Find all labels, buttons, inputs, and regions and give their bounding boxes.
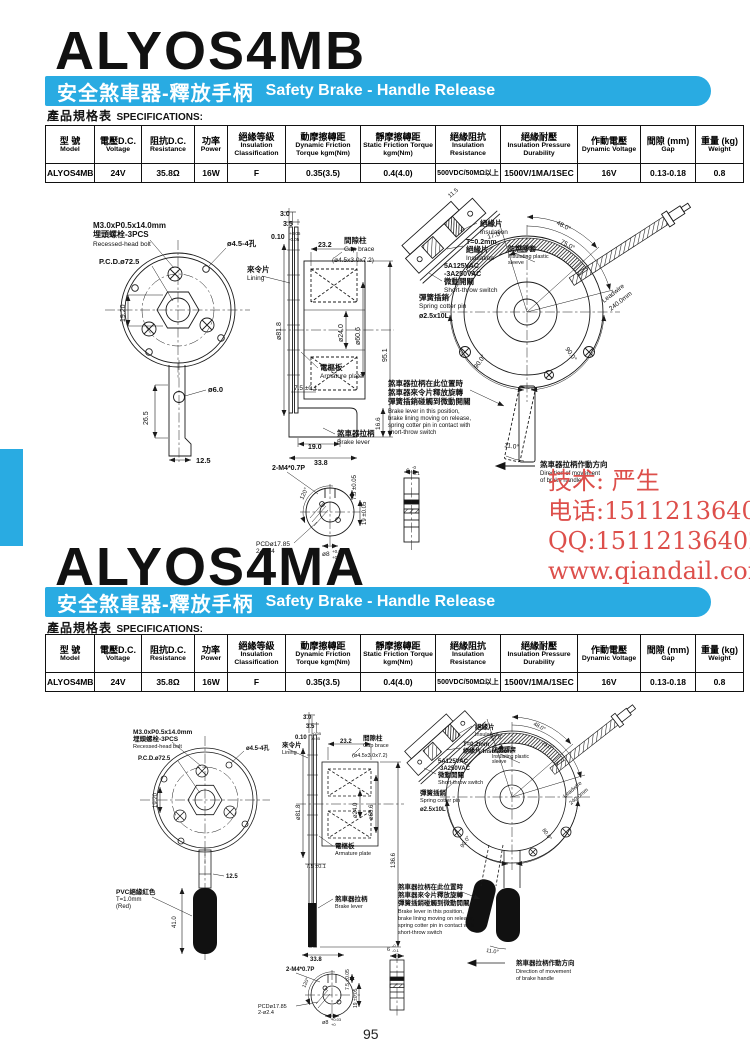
drawing-label: Armature plate <box>335 851 371 857</box>
model-title-svg-1: ALYOS4MB <box>0 0 750 75</box>
drawing-label: 136.6 <box>391 852 397 868</box>
spec-col-header: 動摩擦轉距Dynamic Friction Torque kgm(Nm) <box>286 635 361 673</box>
drawing-label: 5A125VAC <box>438 759 469 765</box>
drawing-label: -0.1 <box>392 948 400 953</box>
page-number: 95 <box>363 1026 379 1042</box>
brake-lever-outline <box>169 365 191 456</box>
drawing-label: 埋頭螺栓-3PCS <box>133 734 179 743</box>
drawing-label: 23.2 <box>318 242 332 249</box>
drawing-label: 11.5 <box>447 187 460 199</box>
drawing-label: 41.0 <box>172 916 178 928</box>
drawing-label: 煞車器拉柄在此位置時 <box>398 882 464 891</box>
drawing-label: -0.05 <box>289 237 300 242</box>
spec-value-cell: 0.13-0.18 <box>641 164 696 183</box>
watermark-line: QQ:15112136402 <box>548 526 750 556</box>
drawing-label: 來令片 <box>247 264 270 274</box>
drawing-label: ø2.5x10L <box>419 313 450 320</box>
spec-value-cell: ALYOS4MB <box>46 164 95 183</box>
spec-heading-1: 產品規格表 SPECIFICATIONS: <box>47 107 203 125</box>
drawing-label: 3.0 <box>280 211 290 218</box>
drawing-label: 防燃膠套 <box>508 244 537 253</box>
drawing-label: 33.8 <box>314 460 328 467</box>
drawing-label: 煞車器拉柄 <box>337 428 375 438</box>
shaft-detail <box>390 953 404 1016</box>
drawing-label: ø60.6 <box>369 804 375 820</box>
spec-col-header: 絕緣耐壓Insulation Pressure Durability <box>501 635 578 673</box>
flange-front-view <box>105 240 250 462</box>
spec-col-header: 阻抗D.C.Resistance <box>142 635 195 673</box>
drawing-label: 2-M4*0.7P <box>286 967 314 973</box>
drawing-label: 0.10 <box>271 234 285 241</box>
drawing-label: ø24.0 <box>338 324 345 342</box>
drawing-label: Lining <box>282 750 297 756</box>
drawing-label: -0.05 <box>311 736 321 741</box>
drawing-label: +0 <box>331 1022 336 1027</box>
spec-value-cell: 0.35(3.5) <box>286 164 361 183</box>
drawing-label: 19.0 <box>308 444 322 451</box>
section-banner-1: 安全煞車器-釋放手柄 Safety Brake - Handle Release <box>45 76 711 106</box>
side-tab-marker <box>0 449 23 546</box>
drawing-label: Direction of movement <box>516 969 571 975</box>
drawing-label: Lining <box>247 275 265 282</box>
spec-table-value-row: ALYOS4MB24V35.8Ω16WF0.35(3.5)0.4(4.0)500… <box>46 673 744 692</box>
pvc-handle-straight <box>496 888 520 942</box>
spec-value-cell: 500VDC/50MΩ以上 <box>436 673 501 692</box>
drawing-label: ø81.8 <box>296 804 302 820</box>
spec-value-cell: 1500V/1MA/1SEC <box>501 673 578 692</box>
drawing-label: Spring cotter pin <box>420 798 460 804</box>
drawing-label: 26.5 <box>143 411 150 425</box>
spec-table-header-row: 型 號Model電壓D.C.Voltage阻抗D.C.Resistance功率P… <box>46 635 744 673</box>
drawing-label: 16.6 <box>375 417 382 430</box>
drawing-label: -0.1 <box>412 471 420 476</box>
mount-lug <box>529 848 537 856</box>
drawing-label: P.C.D.ø72.5 <box>138 756 171 762</box>
drawing-label: short-throw switch <box>398 930 442 936</box>
drawing-label: 11.0° <box>486 948 499 956</box>
drawing-label: 90.0° <box>563 346 579 363</box>
drawing-label: Insulation <box>466 255 494 262</box>
drawing-label: sleeve <box>508 260 524 266</box>
spec-value-cell: ALYOS4MB <box>46 673 95 692</box>
recessed-bolt <box>224 806 236 818</box>
drawing-label: 絕緣片 <box>480 218 503 228</box>
drawing-label: 7.5 ±0.1 <box>306 864 326 870</box>
drawing-label: of brake handle <box>516 976 554 982</box>
technical-drawing-alyos4ma: M3.0xP0.5x14.0mm埋頭螺栓-3PCSRecessed-head b… <box>0 690 750 1035</box>
page-title: ALYOS4MB <box>55 21 366 75</box>
drawing-label: 3.5 <box>306 724 315 730</box>
spec-value-cell: 500VDC/50MΩ以上 <box>436 164 501 183</box>
spec-heading-zh: 產品規格表 <box>47 109 112 123</box>
drawing-label: 彈簧插銷 <box>420 788 447 797</box>
drawing-label: -0 <box>412 465 416 470</box>
recessed-bolt <box>200 318 214 332</box>
drawing-label: 絕緣片 <box>475 722 495 731</box>
drawing-label: 煞車器拉柄在此位置時 <box>388 378 463 388</box>
drawing-label: 7.5 ±0.05 <box>345 969 351 990</box>
drawing-label: +0.05 <box>289 231 301 236</box>
drawing-label: Short-throw switch <box>438 780 483 786</box>
drawing-label: 48.0° <box>555 219 573 233</box>
drawing-label: 間隙柱 <box>344 235 367 245</box>
drawing-label: 90.0° <box>472 353 488 370</box>
spec-value-cell: 0.4(4.0) <box>361 673 436 692</box>
spec-value-cell: 24V <box>95 164 142 183</box>
spec-value-cell: F <box>228 164 286 183</box>
spec-col-header: 型 號Model <box>46 635 95 673</box>
drawing-label: 33.8 <box>310 957 322 963</box>
drawing-label: 煞車器來令片釋放旋轉 <box>398 890 464 899</box>
spec-col-header: 絕緣耐壓Insulation Pressure Durability <box>501 126 578 164</box>
drawing-label: 彈簧插銷 <box>419 292 449 302</box>
watermark-line: 电话:15112136402 <box>548 496 750 526</box>
spec-col-header: 絕緣等級Insulation Classification <box>228 635 286 673</box>
drawing-label: 煞車器拉柄作動方向 <box>516 958 575 967</box>
spec-value-cell: 16W <box>195 164 228 183</box>
leadwire <box>548 702 639 777</box>
spec-col-header: 間隙 (mm)Gap <box>641 635 696 673</box>
spec-table-1: 型 號Model電壓D.C.Voltage阻抗D.C.Resistance功率P… <box>45 125 744 183</box>
drawing-label: 19 ±0.05 <box>353 988 359 1008</box>
drawing-label: Brake lever in this position, <box>398 909 464 915</box>
drawing-label: 120° <box>299 487 310 501</box>
watermark-line: 技术: 严生 <box>548 466 750 496</box>
banner-title-en: Safety Brake - Handle Release <box>266 82 495 100</box>
recessed-bolt <box>174 810 186 822</box>
spec-value-cell: 35.8Ω <box>142 164 195 183</box>
spec-table-2: 型 號Model電壓D.C.Voltage阻抗D.C.Resistance功率P… <box>45 634 744 692</box>
spec-value-cell: 16V <box>578 164 641 183</box>
spec-value-cell: 16V <box>578 673 641 692</box>
drawing-label: ø60.6 <box>355 327 362 345</box>
drawing-label: Recessed-head bolt <box>133 744 182 750</box>
drawing-label: 19.20 <box>120 304 127 322</box>
spec-table-header-row: 型 號Model電壓D.C.Voltage阻抗D.C.Resistance功率P… <box>46 126 744 164</box>
drawing-label: ø4.5-4孔 <box>246 744 269 752</box>
drawing-label: 煞車器拉柄 <box>335 894 368 903</box>
drawing-label: ø4.5-4孔 <box>227 238 257 248</box>
spec-value-cell: 0.13-0.18 <box>641 673 696 692</box>
drawing-label: 11.0° <box>504 441 520 451</box>
spec-value-cell: 0.35(3.5) <box>286 673 361 692</box>
drawing-label: 3.5 <box>283 221 293 228</box>
spec-col-header: 靜摩擦轉距Static Friction Torque kgm(Nm) <box>361 635 436 673</box>
drawing-label: 電樞板 <box>320 362 343 372</box>
drawing-label: 煞車器來令片釋放旋轉 <box>388 387 463 397</box>
watermark-line: www.qiandail.com <box>548 556 750 586</box>
drawing-label: 19 ±0.05 <box>362 501 368 525</box>
drawing-label: ø81.8 <box>276 322 283 340</box>
drawing-label: 90.0° <box>460 835 472 849</box>
drawing-label: 間隙柱 <box>363 733 383 742</box>
spec-col-header: 重量 (kg)Weight <box>696 635 744 673</box>
flange-front-view-ma <box>140 736 270 960</box>
drawing-label: 48.0° <box>532 721 546 732</box>
drawing-label: 7.5 ±0.05 <box>352 474 358 500</box>
pvc-handle-side <box>308 903 316 947</box>
watermark-block: 技术: 严生 电话:15112136402 QQ:15112136402 www… <box>548 466 750 586</box>
drawing-label: PVC絕緣紅色 <box>116 887 156 896</box>
drawing-label: 2-M4*0.7P <box>272 465 305 472</box>
drawing-label: Gap brace <box>363 743 389 749</box>
drawing-label: ø24.0 <box>353 802 359 818</box>
spec-col-header: 阻抗D.C.Resistance <box>142 126 195 164</box>
drawing-label: ø2.5x10L <box>420 807 446 813</box>
spec-col-header: 絕緣阻抗Insulation Resistance <box>436 635 501 673</box>
drawing-label: 95.1 <box>382 348 389 362</box>
datasheet-page: { "page": {"number": "95"}, "colors": {"… <box>0 0 750 1060</box>
drawing-label: 電樞板 <box>335 841 355 850</box>
drawing-label: 2-ø2.4 <box>258 1010 274 1016</box>
drawing-label: P.C.D.ø72.5 <box>99 257 139 266</box>
drawing-label: Spring cotter pin <box>419 303 467 310</box>
drawing-label: 微動開關 <box>437 770 465 779</box>
spec-heading-zh: 產品規格表 <box>47 621 112 635</box>
drawing-label: 80.0° <box>540 828 552 842</box>
drawing-label: spring cotter pin in contact with <box>398 923 474 929</box>
spec-col-header: 絕緣阻抗Insulation Resistance <box>436 126 501 164</box>
spec-col-header: 重量 (kg)Weight <box>696 126 744 164</box>
drawing-label: 3.0 <box>303 715 312 721</box>
drawing-label: 7.5 ±0.1 <box>294 385 318 392</box>
drawing-label: 彈簧插銷碰觸到微動開關 <box>388 396 471 406</box>
drawing-label: (ø4.5x3.0x7.2) <box>332 257 374 264</box>
spec-heading-en: SPECIFICATIONS: <box>116 112 202 123</box>
banner-title-zh: 安全煞車器-釋放手柄 <box>57 588 254 617</box>
spec-value-cell: 1500V/1MA/1SEC <box>501 164 578 183</box>
spec-col-header: 型 號Model <box>46 126 95 164</box>
drawing-label: 微動開關 <box>443 276 474 286</box>
drawing-label: 埋頭螺栓-3PCS <box>93 229 149 239</box>
drawing-label: T=1.0mm <box>116 897 142 903</box>
spec-value-cell: 35.8Ω <box>142 673 195 692</box>
drawing-label: ø8 <box>322 1020 328 1026</box>
drawing-label: 5A125VAC <box>444 263 479 270</box>
drawing-label: M3.0xP0.5x14.0mm <box>133 729 192 736</box>
drawing-label: T=0.2mm <box>463 742 489 748</box>
drawing-label: Brake lever in this position, <box>388 409 460 415</box>
drawing-label: Armature plate <box>320 373 363 380</box>
spec-value-cell: 16W <box>195 673 228 692</box>
drawing-label: (Red) <box>116 904 131 910</box>
spec-col-header: 作動電壓Dynamic Voltage <box>578 635 641 673</box>
drawing-label: 6 <box>406 468 410 475</box>
drawing-label: 23.2 <box>340 739 352 745</box>
leadwire <box>568 199 694 288</box>
drawing-label: brake lining moving on release, <box>398 916 475 922</box>
drawing-label: spring cotter pin in contact with <box>388 423 470 429</box>
spec-col-header: 絕緣等級Insulation Classification <box>228 126 286 164</box>
recessed-bolt <box>196 765 208 777</box>
spec-col-header: 功率Power <box>195 635 228 673</box>
drawing-label: 12.5 <box>226 874 238 880</box>
spec-col-header: 靜摩擦轉距Static Friction Torque kgm(Nm) <box>361 126 436 164</box>
drawing-label: 6 <box>387 947 390 953</box>
banner-title-en: Safety Brake - Handle Release <box>266 593 495 611</box>
banner-title-zh: 安全煞車器-釋放手柄 <box>57 77 254 106</box>
spec-col-header: 電壓D.C.Voltage <box>95 635 142 673</box>
page-title-2: ALYOS4MA <box>55 537 366 591</box>
drawing-label: 彈簧插銷碰觸到微動開關 <box>398 898 470 907</box>
drawing-label: 防燃膠套 <box>492 746 516 754</box>
drawing-label: 19.20 <box>153 792 159 808</box>
spec-col-header: 功率Power <box>195 126 228 164</box>
drawing-label: 來令片 <box>282 740 302 749</box>
drawing-label: sleeve <box>492 759 507 765</box>
spec-value-cell: 0.8 <box>696 673 744 692</box>
drawing-label: 絕緣片 <box>466 244 489 254</box>
spec-col-header: 間隙 (mm)Gap <box>641 126 696 164</box>
spec-value-cell: F <box>228 673 286 692</box>
spec-value-cell: 0.8 <box>696 164 744 183</box>
drawing-label: Short-throw switch <box>444 287 498 294</box>
mount-lug <box>545 371 554 380</box>
spec-col-header: 動摩擦轉距Dynamic Friction Torque kgm(Nm) <box>286 126 361 164</box>
drawing-label: (ø4.5x3.0x7.2) <box>352 753 388 759</box>
drawing-label: brake lining moving on release, <box>388 416 471 422</box>
drawing-label: 0.10 <box>295 735 307 741</box>
drawing-label: Brake lever <box>335 904 363 910</box>
drawing-label: Gap brace <box>344 246 375 253</box>
recessed-bolt <box>142 322 156 336</box>
pvc-handle <box>193 888 217 954</box>
drawing-label: M3.0xP0.5x14.0mm <box>93 221 166 230</box>
spec-table-value-row: ALYOS4MB24V35.8Ω16WF0.35(3.5)0.4(4.0)500… <box>46 164 744 183</box>
drawing-label: 12.5 <box>196 456 211 465</box>
spec-value-cell: 24V <box>95 673 142 692</box>
section-banner-2: 安全煞車器-釋放手柄 Safety Brake - Handle Release <box>45 587 711 617</box>
spec-col-header: 電壓D.C.Voltage <box>95 126 142 164</box>
drawing-label: Brake lever <box>337 439 371 446</box>
spec-col-header: 作動電壓Dynamic Voltage <box>578 126 641 164</box>
drawing-label: ø6.0 <box>208 385 223 394</box>
drawing-label: Recessed-head bolt <box>93 241 151 248</box>
spec-value-cell: 0.4(4.0) <box>361 164 436 183</box>
drawing-label: short-throw switch <box>388 430 436 436</box>
